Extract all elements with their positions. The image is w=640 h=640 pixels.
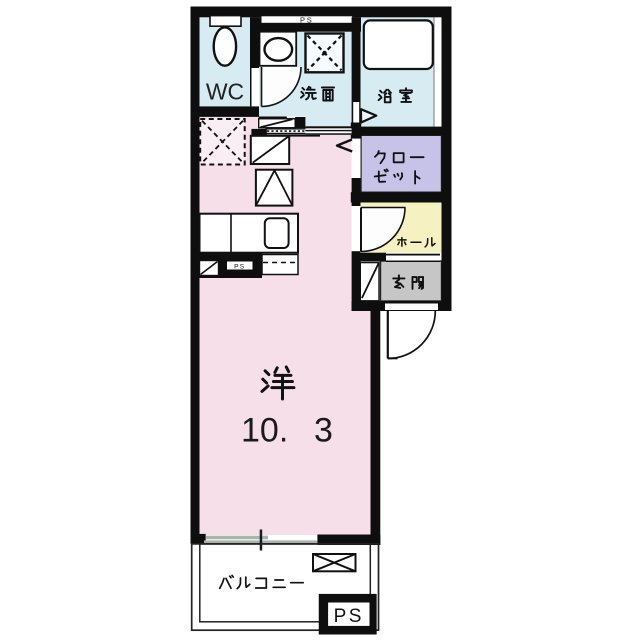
svg-text:10.: 10. (241, 412, 288, 450)
svg-text:PS: PS (234, 263, 245, 270)
svg-text:WC: WC (206, 79, 244, 105)
svg-text:PS: PS (334, 606, 364, 627)
svg-text:3: 3 (314, 412, 333, 450)
svg-text:PS: PS (300, 15, 314, 24)
